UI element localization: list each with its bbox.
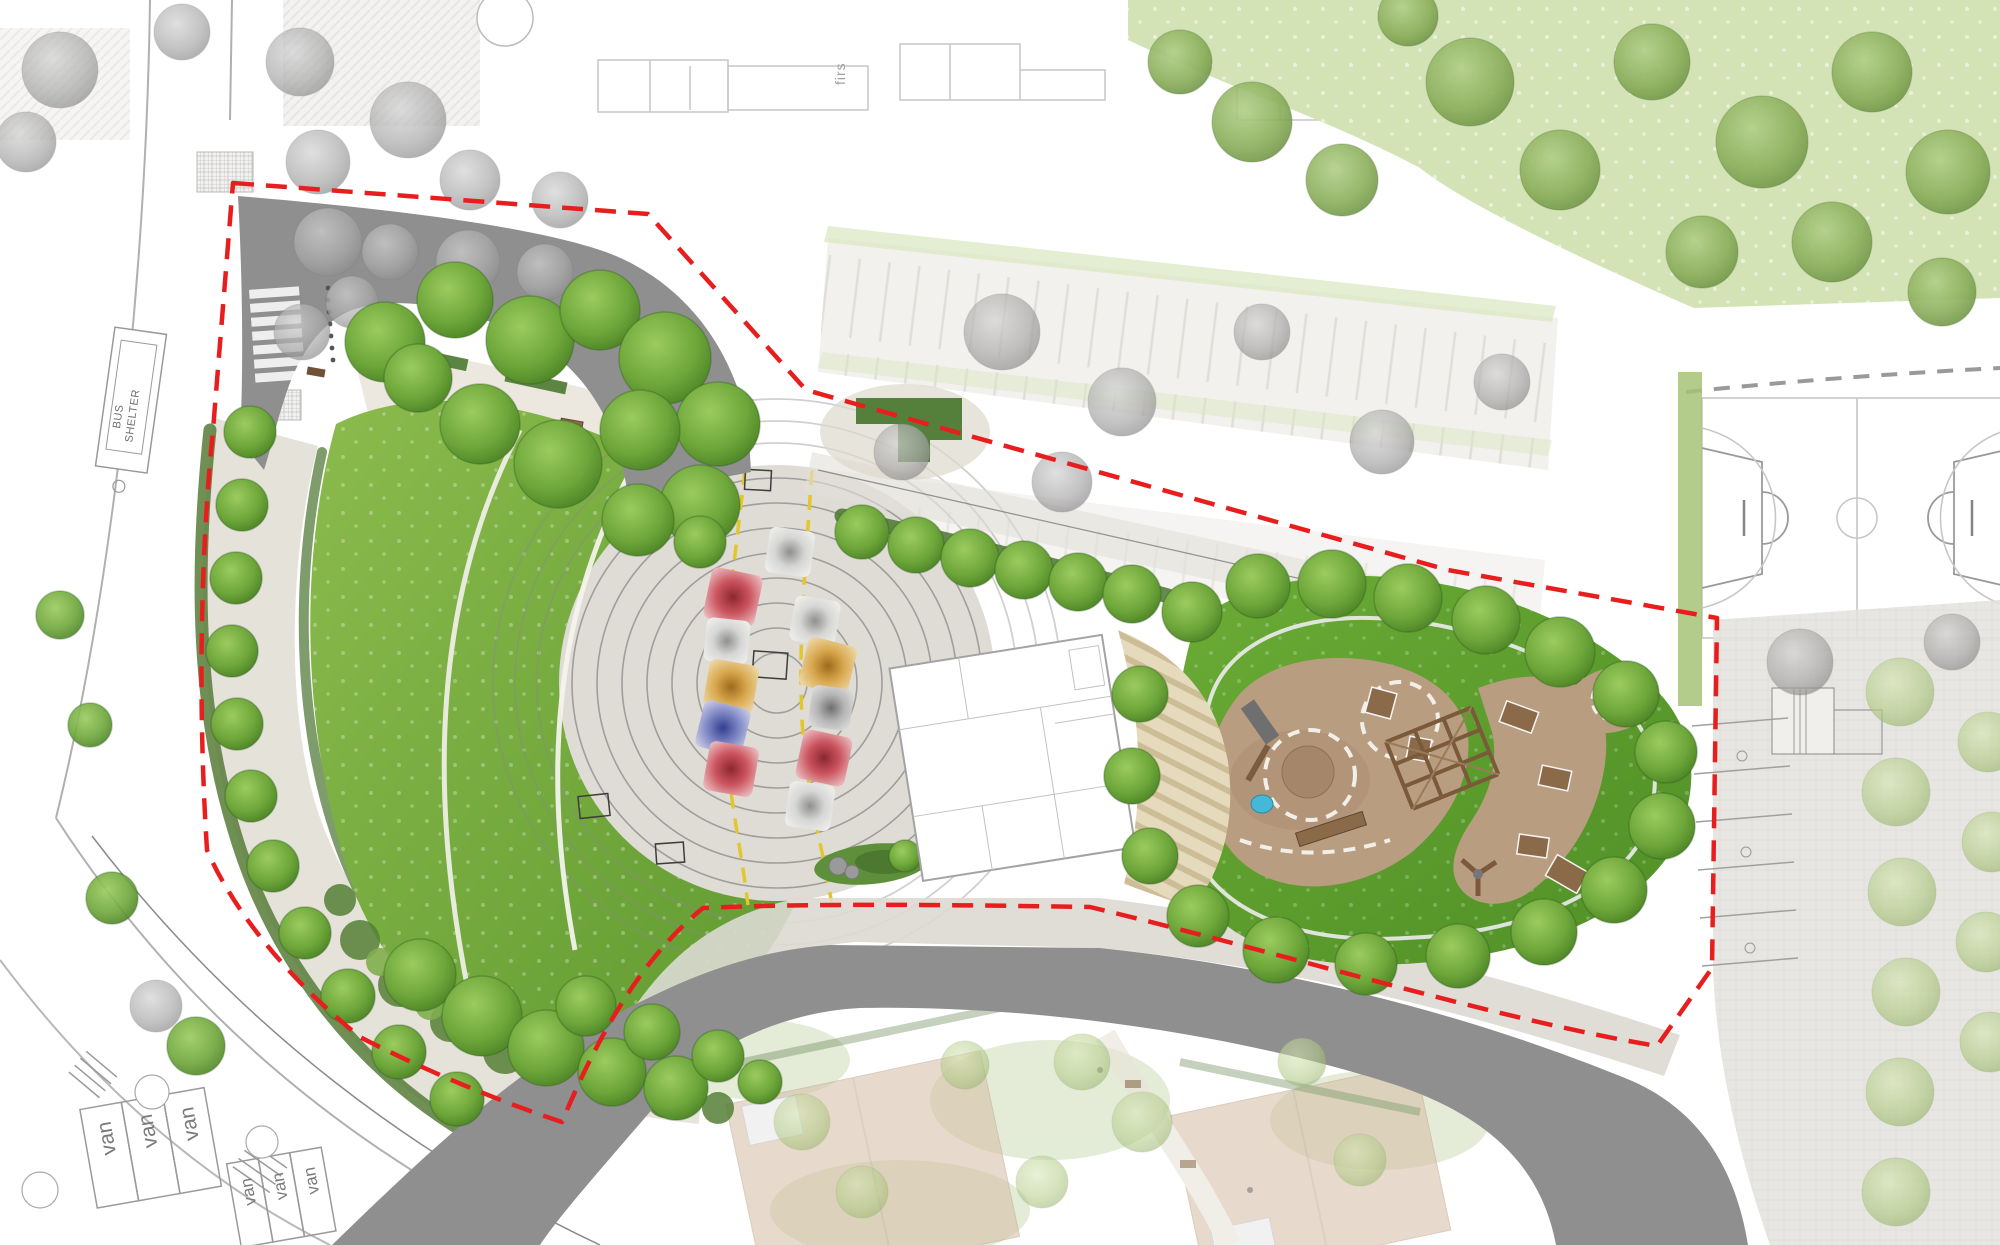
tree — [874, 424, 930, 480]
outline-tree — [22, 1172, 58, 1208]
footpath-steps — [69, 1051, 117, 1097]
context-yard-right — [1692, 600, 2000, 1245]
floorplan-wall — [950, 44, 1020, 100]
tree — [1054, 1034, 1110, 1090]
tree — [274, 304, 330, 360]
tree — [556, 976, 616, 1036]
court-key-left — [1702, 448, 1762, 588]
tree — [417, 262, 493, 338]
context-dashed-line — [1686, 368, 2000, 392]
bollard-light — [1247, 1187, 1253, 1193]
tree — [279, 907, 331, 959]
tree — [22, 32, 98, 108]
tree — [835, 505, 889, 559]
tree — [1716, 96, 1808, 188]
canopy-red — [702, 740, 760, 798]
building-footprint — [889, 635, 1135, 881]
tree — [1298, 550, 1366, 618]
tree — [1032, 452, 1092, 512]
court-key-right — [1954, 448, 2000, 588]
tree — [1426, 38, 1514, 126]
tree — [0, 112, 56, 172]
court-outline — [1702, 398, 2000, 638]
tree — [624, 1004, 680, 1060]
tree — [1614, 24, 1690, 100]
tree — [225, 770, 277, 822]
tree — [1629, 793, 1695, 859]
tree — [1832, 32, 1912, 112]
tree — [674, 516, 726, 568]
tree — [440, 384, 520, 464]
tree — [1862, 1158, 1930, 1226]
outline-tree — [477, 0, 533, 46]
tree — [210, 552, 262, 604]
canopy-grey — [807, 684, 854, 731]
tree — [1908, 258, 1976, 326]
spinner-hub — [1473, 869, 1483, 879]
tree — [224, 406, 276, 458]
floorplan-wall — [650, 60, 690, 112]
left-road-curb — [230, 0, 232, 120]
tree — [68, 703, 112, 747]
tree — [266, 28, 334, 96]
tree — [154, 4, 210, 60]
boulder — [829, 857, 847, 875]
canopy-white — [703, 617, 751, 665]
tree — [1122, 828, 1178, 884]
tree — [294, 208, 362, 276]
canopy-white — [764, 526, 816, 578]
tree — [1581, 857, 1647, 923]
tree — [1234, 304, 1290, 360]
tree — [1306, 144, 1378, 216]
community-building — [889, 635, 1135, 881]
tree — [211, 698, 263, 750]
tree — [602, 484, 674, 556]
tree — [1016, 1156, 1068, 1208]
tree — [1104, 748, 1160, 804]
floor-plan-note: firs — [832, 62, 848, 85]
grass-verge — [1678, 372, 1702, 706]
tree — [167, 1017, 225, 1075]
tree — [1374, 564, 1442, 632]
tree — [1334, 1134, 1386, 1186]
bollard — [330, 346, 335, 351]
tree — [1868, 858, 1936, 926]
three-point-left — [1702, 428, 1776, 608]
tree — [1088, 368, 1156, 436]
tree — [286, 130, 350, 194]
tree — [1635, 721, 1697, 783]
tree — [1112, 1092, 1172, 1152]
tree — [1866, 658, 1934, 726]
tree — [247, 840, 299, 892]
outline-tree — [135, 1075, 169, 1109]
yard-paving-texture — [1713, 600, 2000, 1245]
tree — [130, 980, 182, 1032]
garden-bench — [1180, 1160, 1196, 1168]
tree — [384, 344, 452, 412]
tree — [321, 969, 375, 1023]
tree — [1148, 30, 1212, 94]
tree — [532, 172, 588, 228]
shrub — [324, 884, 356, 916]
tree — [1452, 586, 1520, 654]
tree — [1112, 666, 1168, 722]
tree — [1278, 1038, 1326, 1086]
tree — [995, 541, 1053, 599]
tree — [370, 82, 446, 158]
tree — [1666, 216, 1738, 288]
tree — [1866, 1058, 1934, 1126]
tree — [1525, 617, 1595, 687]
tree — [1511, 899, 1577, 965]
canopy-white — [784, 780, 836, 832]
tree — [86, 872, 138, 924]
tree — [1872, 958, 1940, 1026]
tree — [1593, 661, 1659, 727]
tree — [941, 529, 999, 587]
floorplan-outline — [598, 60, 728, 112]
tree — [216, 479, 268, 531]
van-bay-label: van — [93, 1120, 122, 1157]
tree — [1767, 629, 1833, 695]
tree — [1103, 565, 1161, 623]
tree — [1212, 82, 1292, 162]
play-mound — [1282, 746, 1334, 798]
tree — [600, 390, 680, 470]
site-plan-canvas: firs BUS SHELTER — [0, 0, 2000, 1245]
floorplan-outline — [900, 44, 1105, 100]
canopy-red — [794, 728, 853, 787]
tree — [1792, 202, 1872, 282]
boulder — [845, 865, 859, 879]
tree — [676, 382, 760, 466]
tree — [1350, 410, 1414, 474]
water-play — [1251, 795, 1273, 813]
basketball-court — [1702, 398, 2000, 638]
tree — [1426, 924, 1490, 988]
tree — [1520, 130, 1600, 210]
play-tower — [1365, 687, 1397, 719]
van-bay-label: van — [237, 1177, 260, 1207]
tree — [774, 1094, 830, 1150]
tree — [1924, 614, 1980, 670]
tree — [964, 294, 1040, 370]
step-lines — [69, 1051, 117, 1097]
three-point-right — [1941, 428, 2000, 608]
bollard — [331, 358, 336, 363]
tree — [362, 224, 418, 280]
tree — [206, 625, 258, 677]
tree — [738, 1060, 782, 1104]
bench — [306, 366, 325, 377]
timber-deck — [1517, 834, 1549, 858]
tree — [1226, 554, 1290, 618]
stair-ramp — [1772, 688, 1834, 754]
van-bay-label: van — [300, 1166, 323, 1196]
outline-tree — [246, 1126, 278, 1158]
tree — [941, 1041, 989, 1089]
bus-shelter: BUS SHELTER — [92, 327, 166, 496]
tree — [888, 517, 944, 573]
tree — [36, 591, 84, 639]
tree — [1906, 130, 1990, 214]
site-plan-svg: firs BUS SHELTER — [0, 0, 2000, 1245]
van-bay-label: van — [175, 1105, 204, 1142]
tree — [889, 840, 921, 872]
garden-bench — [1125, 1080, 1141, 1088]
van-bay-label: van — [134, 1112, 163, 1149]
tree — [1862, 758, 1930, 826]
tree — [1049, 553, 1107, 611]
tree — [692, 1030, 744, 1082]
van-bay-label: van — [268, 1171, 291, 1201]
tree — [836, 1166, 888, 1218]
tree — [1474, 354, 1530, 410]
tree — [1162, 582, 1222, 642]
tree — [372, 1025, 426, 1079]
tree — [514, 420, 602, 508]
